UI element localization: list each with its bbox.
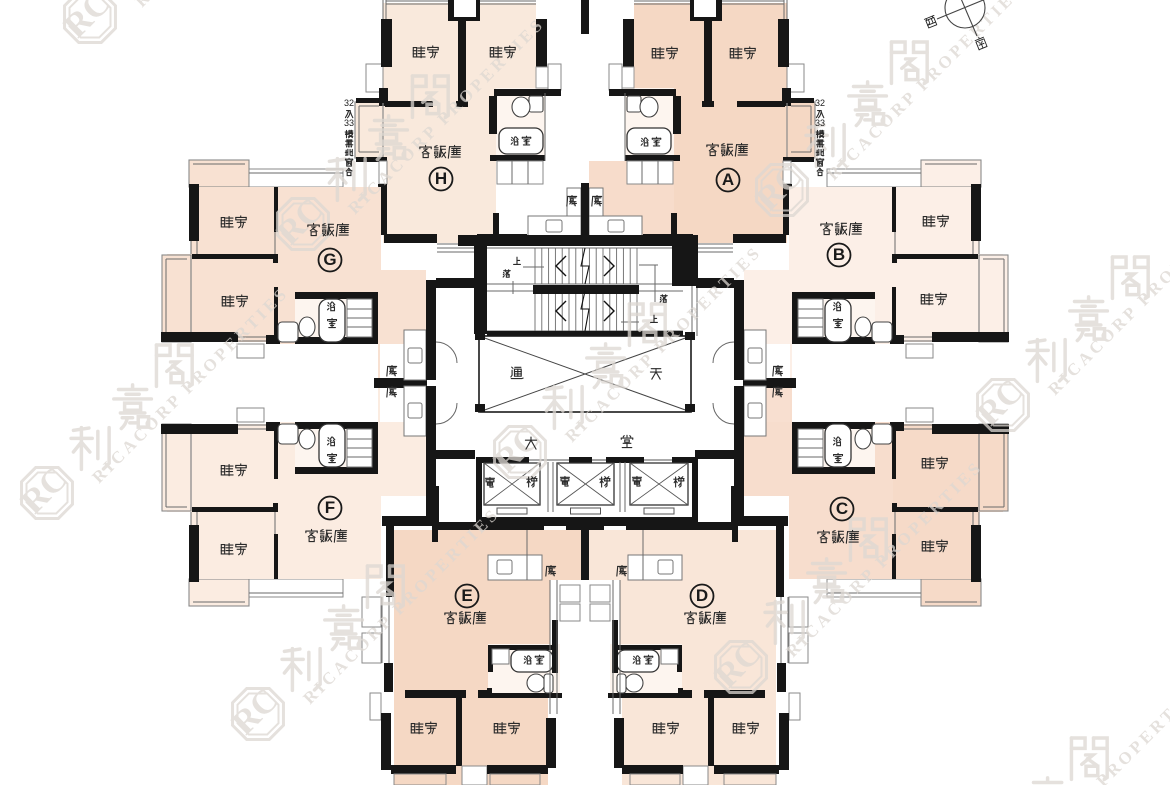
svg-text:33: 33: [344, 118, 354, 128]
svg-text:H: H: [435, 169, 447, 188]
svg-text:G: G: [323, 250, 336, 269]
svg-text:B: B: [833, 245, 845, 264]
svg-text:A: A: [722, 170, 734, 189]
svg-text:C: C: [836, 499, 848, 518]
svg-text:33: 33: [815, 118, 825, 128]
svg-text:32: 32: [344, 98, 354, 108]
svg-text:F: F: [325, 498, 335, 517]
svg-text:32: 32: [815, 98, 825, 108]
svg-text:E: E: [461, 586, 472, 605]
svg-text:D: D: [696, 586, 708, 605]
